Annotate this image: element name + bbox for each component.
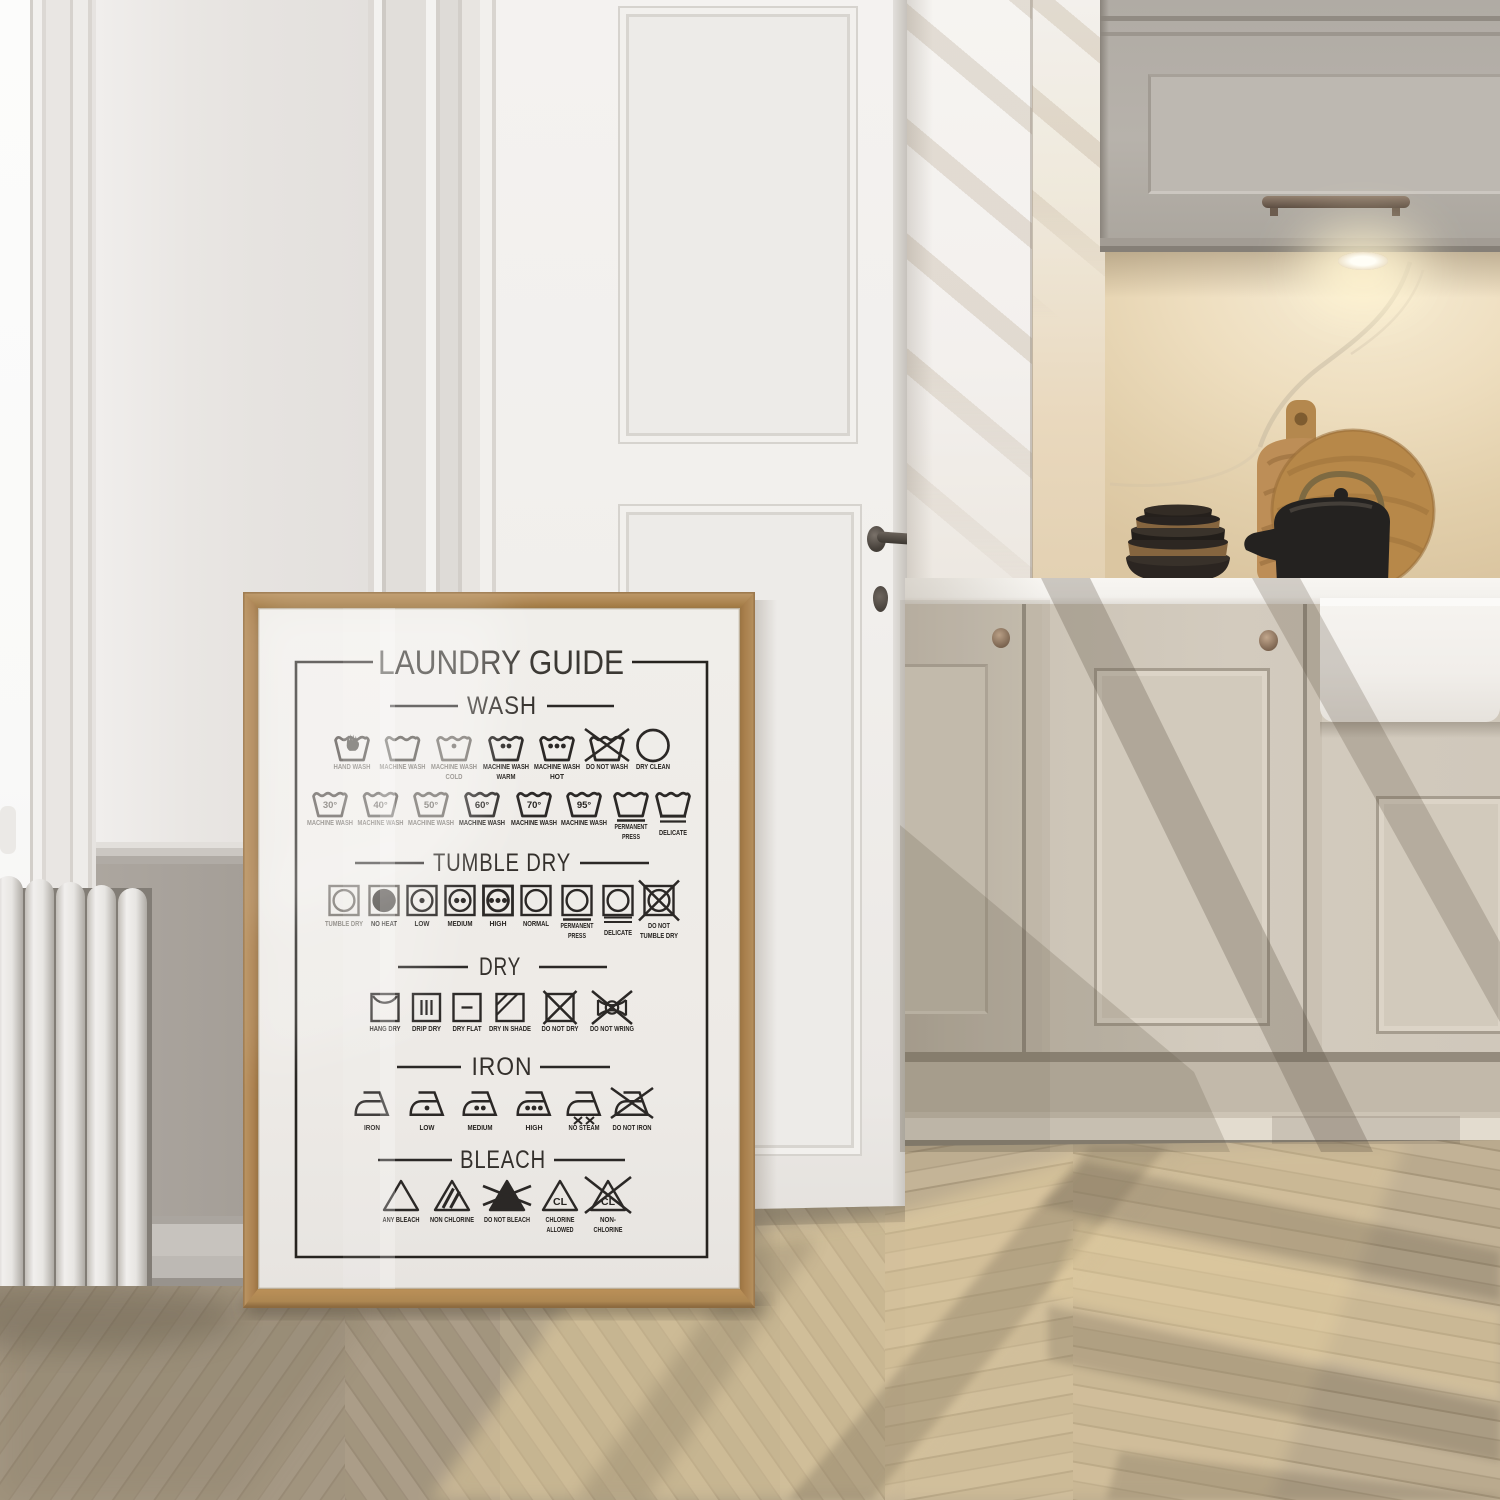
svg-text:CL: CL — [553, 1196, 568, 1208]
svg-text:DO NOT BLEACH: DO NOT BLEACH — [484, 1215, 530, 1224]
svg-text:MEDIUM: MEDIUM — [468, 1123, 493, 1132]
svg-text:MACHINE WASH: MACHINE WASH — [534, 762, 580, 771]
svg-text:DO NOT WRING: DO NOT WRING — [590, 1024, 634, 1033]
svg-text:NON CHLORINE: NON CHLORINE — [430, 1215, 474, 1224]
svg-text:PRESS: PRESS — [622, 832, 640, 841]
svg-text:DO NOT: DO NOT — [648, 921, 670, 930]
svg-text:DRIP DRY: DRIP DRY — [412, 1024, 441, 1033]
svg-text:ALLOWED: ALLOWED — [547, 1225, 574, 1234]
svg-text:DRY CLEAN: DRY CLEAN — [636, 762, 670, 771]
svg-text:HIGH: HIGH — [490, 919, 507, 928]
svg-text:DO NOT DRY: DO NOT DRY — [542, 1024, 579, 1033]
svg-text:PERMANENT: PERMANENT — [561, 921, 594, 930]
svg-text:PERMANENT: PERMANENT — [615, 822, 648, 831]
svg-text:DRY IN SHADE: DRY IN SHADE — [489, 1024, 531, 1033]
svg-text:MACHINE WASH: MACHINE WASH — [511, 818, 557, 827]
svg-text:LOW: LOW — [420, 1123, 435, 1132]
svg-text:NO STEAM: NO STEAM — [569, 1123, 600, 1132]
svg-text:WARM: WARM — [497, 772, 516, 781]
svg-text:TUMBLE DRY: TUMBLE DRY — [640, 931, 678, 940]
svg-text:TUMBLE DRY: TUMBLE DRY — [433, 849, 571, 877]
svg-text:DRY FLAT: DRY FLAT — [453, 1024, 483, 1033]
svg-text:PRESS: PRESS — [568, 931, 586, 940]
svg-text:DELICATE: DELICATE — [659, 828, 687, 837]
svg-text:DO NOT IRON: DO NOT IRON — [613, 1123, 652, 1132]
svg-text:IRON: IRON — [472, 1053, 533, 1081]
svg-text:DRY: DRY — [479, 953, 521, 981]
svg-text:DELICATE: DELICATE — [604, 928, 632, 937]
svg-text:BLEACH: BLEACH — [460, 1146, 546, 1174]
svg-text:NON-: NON- — [600, 1215, 617, 1224]
svg-text:CHLORINE: CHLORINE — [594, 1225, 623, 1234]
svg-text:95°: 95° — [577, 800, 592, 811]
svg-text:MACHINE WASH: MACHINE WASH — [561, 818, 607, 827]
svg-text:HIGH: HIGH — [526, 1123, 543, 1132]
svg-text:HOT: HOT — [550, 772, 565, 781]
svg-text:DO NOT WASH: DO NOT WASH — [586, 762, 628, 771]
svg-text:70°: 70° — [527, 800, 542, 811]
svg-text:MEDIUM: MEDIUM — [448, 919, 473, 928]
svg-text:CHLORINE: CHLORINE — [546, 1215, 575, 1224]
svg-text:NORMAL: NORMAL — [523, 919, 549, 928]
